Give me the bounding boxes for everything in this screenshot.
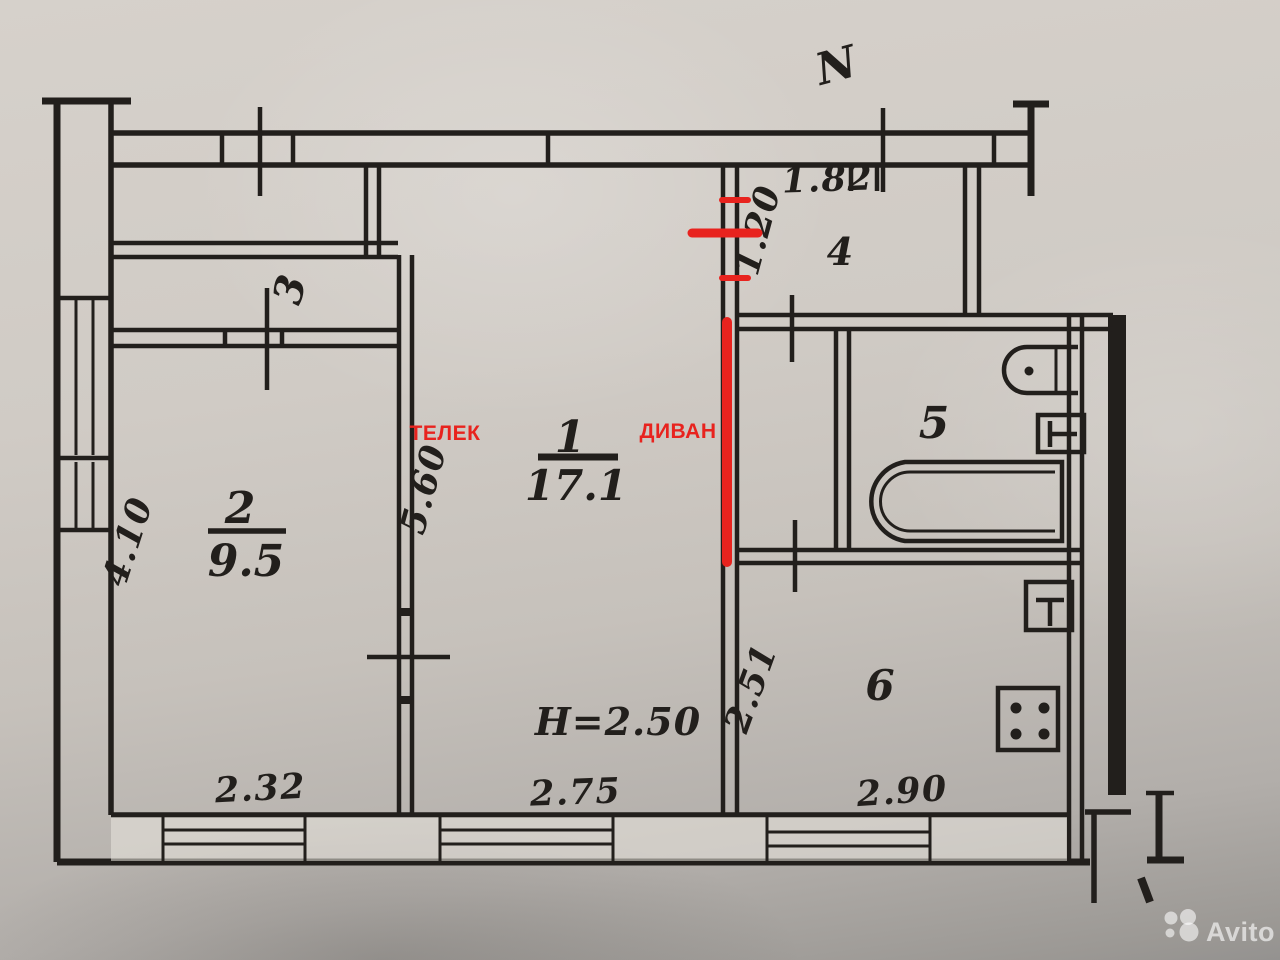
dim-room1-left-wall: 5.60 — [392, 440, 455, 539]
dim-room2-left-wall: 4.10 — [94, 492, 161, 591]
north-mark: N — [808, 36, 864, 97]
room2-area: 9.5 — [208, 536, 285, 587]
stove-burner — [1011, 729, 1022, 740]
room5-number: 5 — [919, 398, 950, 449]
kitchen-fixtures — [998, 582, 1072, 750]
right-thick-wall — [1108, 315, 1126, 795]
photographed-paper-background: 1 17.1 2 9.5 3 4 5 6 1.82 1.20 4.10 5.60… — [0, 0, 1280, 960]
stove-burner — [1039, 729, 1050, 740]
room2-number: 2 — [224, 483, 256, 534]
dim-room2-window: 2.32 — [213, 766, 307, 812]
room3-number: 3 — [264, 270, 317, 309]
floor-plan: 1 17.1 2 9.5 3 4 5 6 1.82 1.20 4.10 5.60… — [0, 0, 1280, 960]
sofa-label: ДИВАН — [639, 420, 716, 443]
tv-label: ТЕЛЕК — [410, 422, 481, 445]
dim-kitchen-depth: 2.51 — [716, 638, 786, 739]
room6-number: 6 — [865, 661, 894, 710]
stove-burner — [1039, 703, 1050, 714]
window-band — [111, 817, 1067, 861]
avito-watermark: Avito — [1165, 909, 1276, 947]
toilet-inner — [1050, 421, 1077, 447]
toilet-icon — [1038, 415, 1084, 452]
bathroom-fixtures — [871, 347, 1084, 541]
avito-logo-icon — [1180, 923, 1199, 942]
ceiling-height-note: H=2.50 — [534, 699, 701, 744]
stove-icon — [998, 688, 1058, 750]
stove-outline — [998, 688, 1058, 750]
dim-kitchen-window: 2.90 — [854, 768, 949, 815]
pen-blob — [1141, 878, 1150, 902]
avito-watermark-text: Avito — [1206, 917, 1275, 947]
avito-logo-icon — [1166, 929, 1175, 938]
window-glazing — [76, 300, 930, 862]
bathtub-inner — [881, 472, 1056, 531]
bathtub-icon — [871, 462, 1062, 541]
kitchen-sink-icon — [1026, 582, 1072, 630]
stove-burner — [1011, 703, 1022, 714]
dim-room1-window: 2.75 — [528, 770, 622, 814]
kitchen-sink-inner — [1036, 600, 1064, 626]
dim-hall-width: 1.82 — [781, 157, 874, 201]
room4-number: 4 — [827, 229, 853, 274]
avito-logo-icon — [1165, 912, 1178, 925]
room1-area: 17.1 — [525, 461, 627, 510]
washbasin-drain — [1025, 367, 1034, 376]
